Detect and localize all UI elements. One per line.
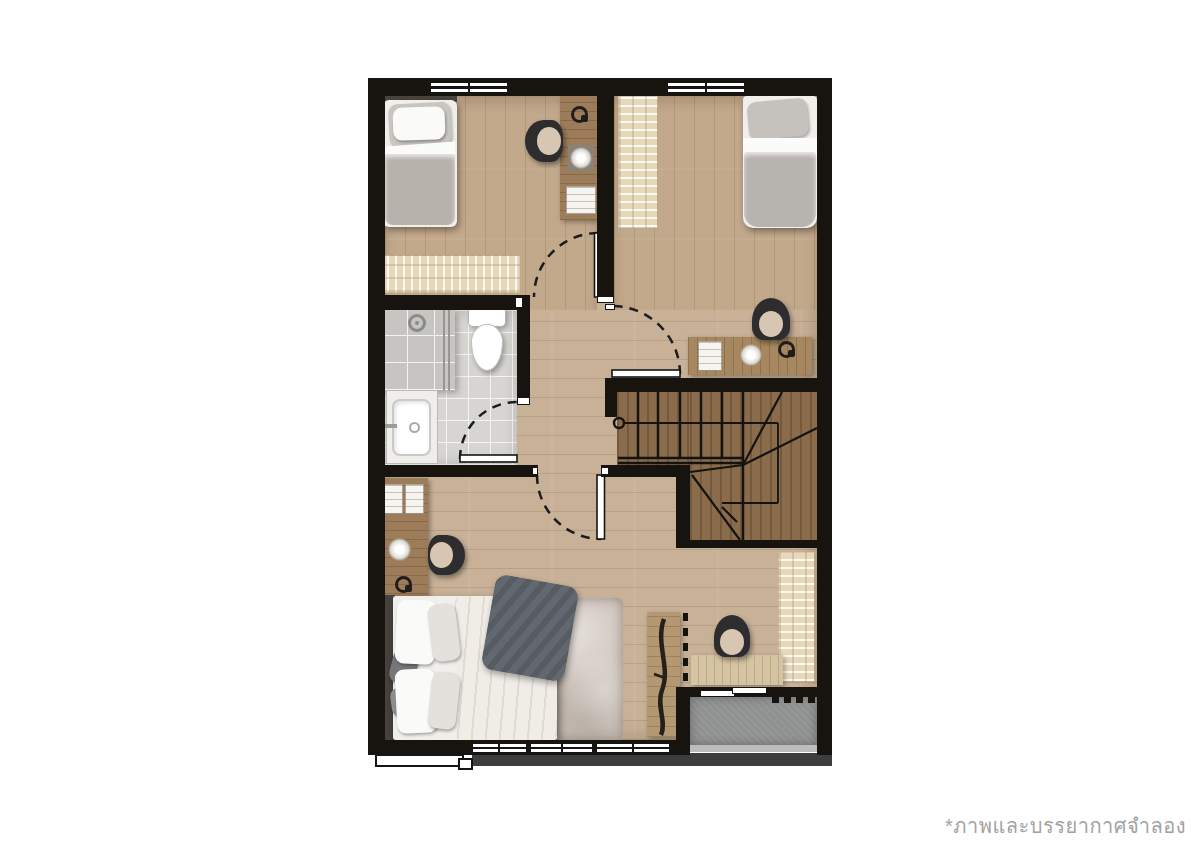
floor-plan (368, 78, 832, 766)
louver-tooth (796, 697, 803, 703)
door-bedroom2 (612, 306, 680, 377)
louver-tooth (784, 697, 791, 703)
wall-cap (597, 296, 614, 303)
wall-bedroom1-south (368, 295, 523, 310)
page-background: *ภาพและบรรยากาศจำลอง (0, 0, 1200, 850)
window-bottom-1 (472, 743, 527, 753)
door-bedroom1 (534, 233, 602, 297)
window-bottom-3 (596, 743, 670, 753)
window-top-left (430, 82, 508, 93)
window-top-right (667, 82, 745, 93)
wall-bathroom-east (517, 295, 530, 405)
wall-stairwell-south (676, 540, 817, 548)
wall-balcony-west (676, 687, 690, 755)
door-master (537, 475, 605, 539)
wall-left (368, 78, 385, 755)
door-bathroom (460, 402, 517, 462)
tv-top-view (654, 619, 665, 735)
wall-right (817, 78, 832, 755)
louver-tooth (772, 697, 779, 703)
wall-stairwell-west (676, 465, 690, 548)
wall-bathroom-south (368, 465, 538, 477)
balcony-slider-panel-1 (700, 690, 735, 697)
wall-bedroom-divider (597, 96, 614, 303)
wall-stairwell-north (605, 378, 832, 392)
window-bottom-2 (530, 743, 593, 753)
wall-cap (532, 467, 538, 475)
louver-tooth (808, 697, 815, 703)
wall-cap (601, 467, 609, 475)
wall-stairwell-stub (605, 378, 617, 417)
disclaimer-text: *ภาพและบรรยากาศจำลอง (945, 810, 1186, 842)
wall-cap (517, 397, 530, 405)
wall-cap (515, 297, 523, 308)
balcony-slider-panel-2 (732, 687, 767, 694)
wall-cap (605, 304, 615, 310)
